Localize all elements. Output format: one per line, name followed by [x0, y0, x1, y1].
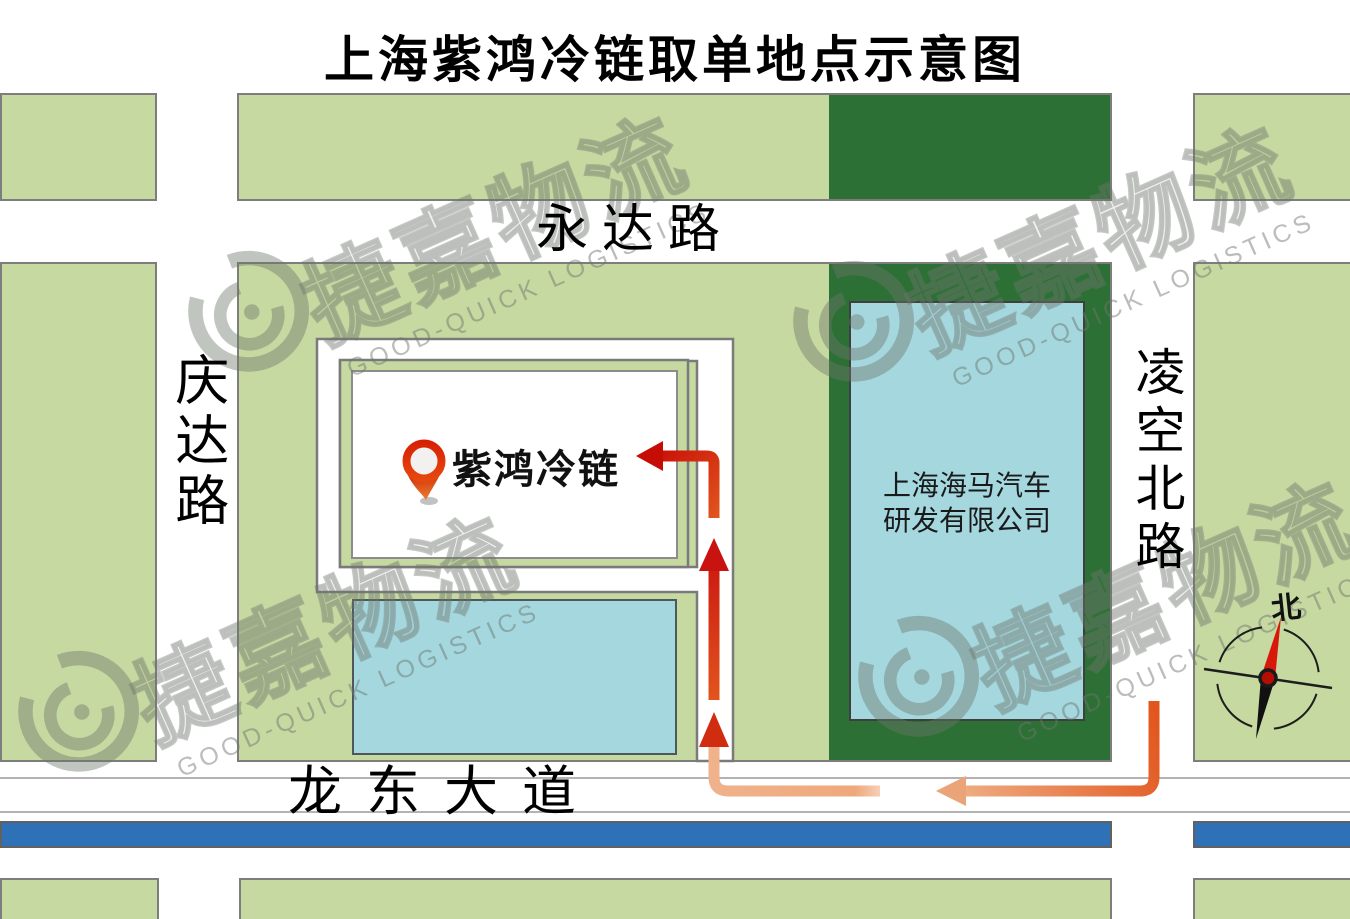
- block-right-compass: [1193, 262, 1350, 762]
- road-label-yongda: 永达路: [450, 203, 820, 258]
- lane-marking: [0, 811, 1350, 813]
- pickup-location-label: 紫鸿冷链: [452, 437, 620, 495]
- building-south: [352, 599, 677, 755]
- block-top-right: [1193, 93, 1350, 201]
- road-label-qingda: 庆达路: [168, 352, 225, 532]
- block-top-left: [0, 93, 157, 201]
- block-top-center: [237, 93, 1112, 201]
- road-label-lingkong: 凌空北路: [1130, 346, 1183, 578]
- block-bottom-right: [1193, 878, 1350, 919]
- haima-line1: 上海海马汽车: [849, 468, 1085, 503]
- page-title: 上海紫鸿冷链取单地点示意图: [0, 20, 1350, 92]
- expressway-bar-right: [1193, 821, 1350, 848]
- block-bottom-center: [239, 878, 1112, 919]
- haima-line2: 研发有限公司: [849, 503, 1085, 538]
- block-top-dark-green: [829, 95, 1110, 199]
- haima-building-label: 上海海马汽车 研发有限公司: [849, 468, 1085, 538]
- expressway-bar-left: [0, 821, 1112, 848]
- block-bottom-left: [0, 878, 159, 919]
- road-label-longdong: 龙东大道: [288, 764, 600, 821]
- lane-marking: [0, 777, 1350, 779]
- map-canvas: 上海紫鸿冷链取单地点示意图 捷嘉物流 GOOD-QUICK LOGISTICS: [0, 0, 1350, 919]
- block-left: [0, 262, 157, 762]
